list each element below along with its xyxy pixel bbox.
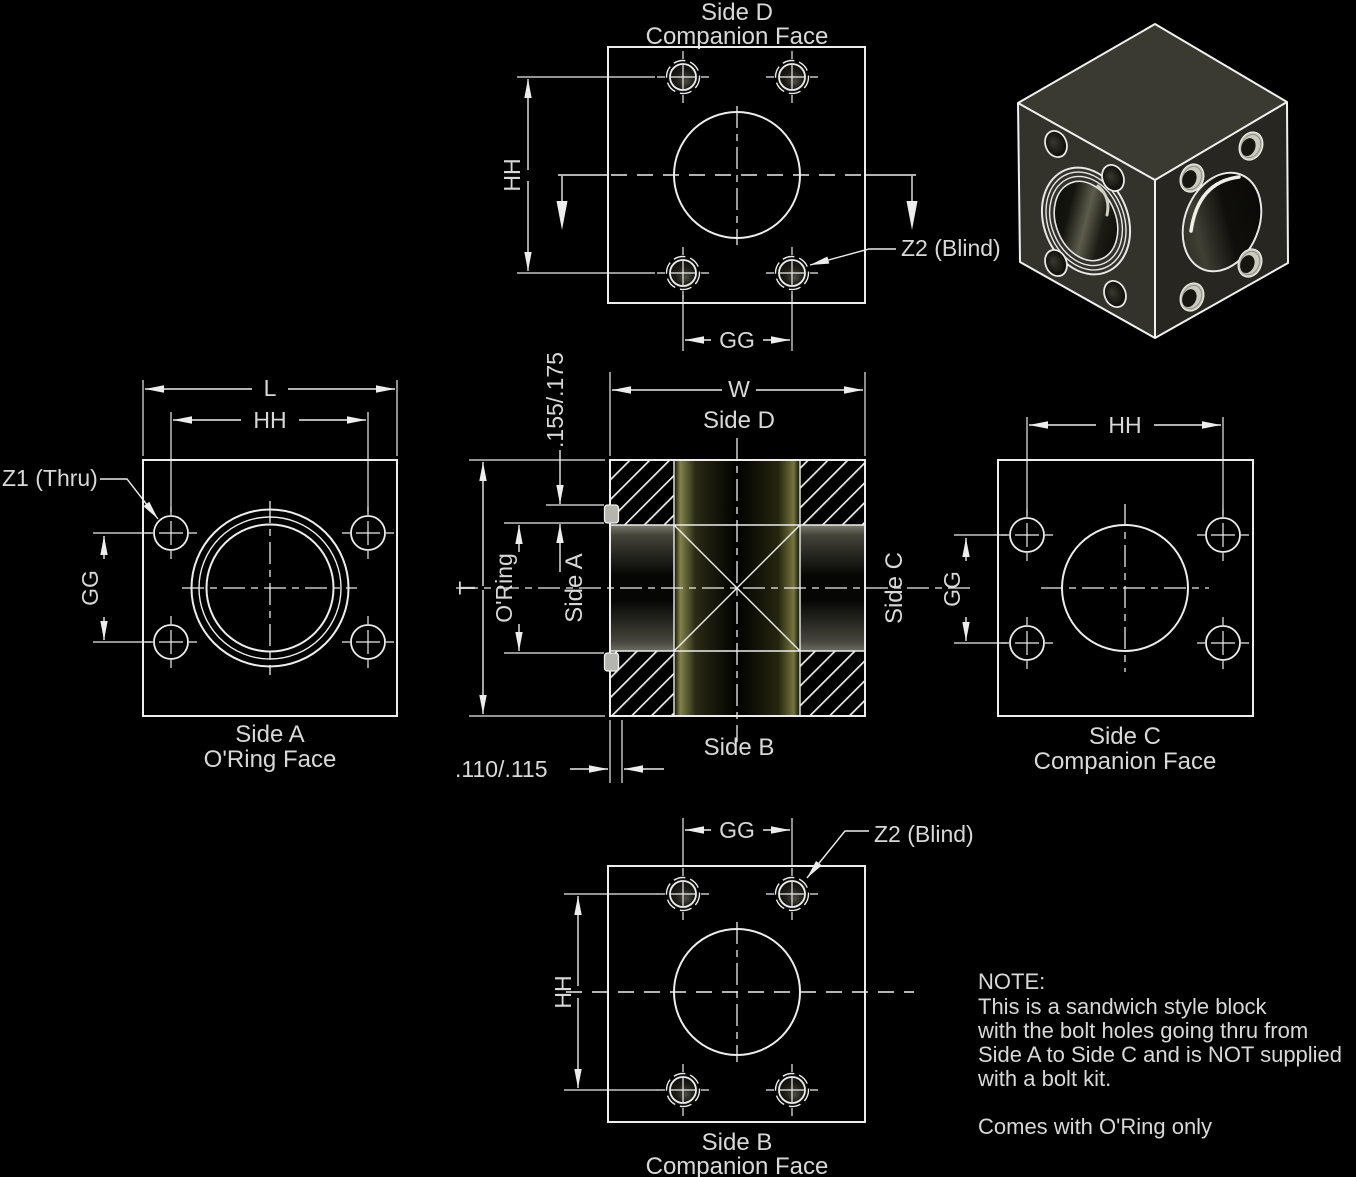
- note-line: Side A to Side C and is NOT supplied: [978, 1042, 1342, 1067]
- side-b-title: Side B: [702, 1129, 773, 1156]
- dim-label-hh: HH: [253, 407, 286, 433]
- side-d-subtitle: Companion Face: [646, 23, 829, 50]
- side-c-title: Side C: [1089, 723, 1161, 750]
- hatch-corner: [800, 651, 865, 716]
- dim-label-w: W: [728, 376, 750, 402]
- oring-cross-section: [605, 653, 619, 671]
- oring-cross-section: [605, 505, 619, 523]
- dim-label-groove-depth: .110/.115: [455, 756, 548, 782]
- callout-z2-label: Z2 (Blind): [901, 235, 1001, 261]
- dim-label-gg: GG: [77, 570, 103, 606]
- dim-label-l: L: [264, 375, 277, 401]
- note-line: with the bolt holes going thru from: [977, 1018, 1308, 1043]
- note-line: Comes with O'Ring only: [978, 1114, 1212, 1139]
- callout-z2-label: Z2 (Blind): [874, 821, 974, 847]
- dim-label-groove-width: .155/.175: [542, 352, 568, 448]
- section-label-side-d: Side D: [703, 407, 775, 434]
- note-line: with a bolt kit.: [977, 1066, 1111, 1091]
- dim-label-gg: GG: [939, 571, 965, 607]
- note-line: This is a sandwich style block: [978, 994, 1268, 1019]
- section-label-side-c: Side C: [881, 552, 908, 624]
- section-label-side-a: Side A: [561, 553, 588, 622]
- side-a-title: Side A: [235, 721, 304, 748]
- dim-label-t: T: [454, 581, 480, 595]
- hatch-corner: [610, 651, 674, 716]
- dim-label-hh: HH: [550, 975, 576, 1008]
- section-label-side-b: Side B: [704, 734, 775, 761]
- note-title: NOTE:: [978, 969, 1045, 994]
- dim-label-gg: GG: [719, 327, 755, 353]
- hatch-corner: [800, 460, 865, 525]
- side-a-subtitle: O'Ring Face: [204, 746, 337, 773]
- callout-z1-label: Z1 (Thru): [2, 465, 98, 491]
- dim-label-hh: HH: [499, 158, 525, 191]
- dim-label-gg: GG: [719, 817, 755, 843]
- side-c-subtitle: Companion Face: [1034, 748, 1217, 775]
- hatch-corner: [610, 460, 674, 525]
- dim-label-hh: HH: [1108, 412, 1141, 438]
- engineering-drawing: Side D Companion Face: [0, 0, 1356, 1177]
- side-b-subtitle: Companion Face: [646, 1153, 829, 1177]
- dim-label-oring: O'Ring: [491, 553, 517, 623]
